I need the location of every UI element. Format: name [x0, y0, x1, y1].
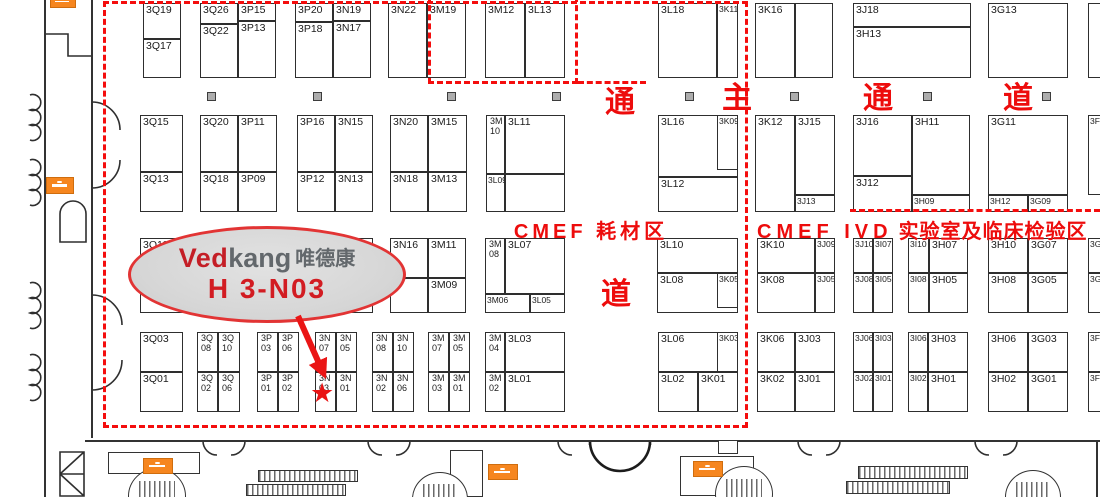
- column-marker: [790, 92, 799, 101]
- booth-3F0: 3F0: [1088, 332, 1100, 372]
- elevator-icon: [693, 461, 723, 477]
- escalator: [858, 466, 968, 479]
- service-room: [718, 440, 738, 454]
- main-aisle-label-3: 道: [1000, 84, 1036, 114]
- escalator: [846, 481, 950, 494]
- main-aisle-label-1: 主: [719, 84, 755, 114]
- booth-3J03: 3J03: [795, 332, 835, 372]
- elevator-icon: [50, 0, 76, 8]
- booth-3H08: 3H08: [988, 273, 1028, 313]
- booth-3H02: 3H02: [988, 372, 1028, 412]
- booth-3J12: 3J12: [853, 176, 912, 212]
- booth-3J08: 3J08: [853, 273, 873, 313]
- region-label-ivd-prefix: CMEF IVD: [757, 221, 893, 243]
- inner-wall-left: [91, 0, 93, 438]
- bottom-wall: [85, 440, 1100, 442]
- dashed-segment: [578, 81, 646, 84]
- booth-star-icon: ★: [310, 380, 334, 407]
- booth-3G05: 3G05: [1028, 273, 1068, 313]
- booth-3G11: 3G11: [988, 115, 1068, 195]
- booth-3J01: 3J01: [795, 372, 835, 412]
- booth-3I01: 3I01: [873, 372, 893, 412]
- booth-3I02: 3I02: [908, 372, 928, 412]
- column-marker: [1042, 92, 1051, 101]
- booth-3G03: 3G03: [1028, 332, 1068, 372]
- elevator-icon: [488, 464, 518, 480]
- logo-text-kang: kang: [228, 243, 291, 273]
- booth-3J02: 3J02: [853, 372, 873, 412]
- aisle-label-vertical-top: 通: [602, 88, 638, 118]
- booth-3J15: 3J15: [795, 115, 835, 195]
- booth-3J05: 3J05: [815, 273, 835, 313]
- booth-3K06: 3K06: [757, 332, 795, 372]
- booth-3H11: 3H11: [912, 115, 970, 195]
- escalator: [258, 470, 358, 482]
- booth-3G01: 3G01: [1028, 372, 1068, 412]
- booth-3G0: 3G0: [1088, 273, 1100, 313]
- logo-text-cn: 唯德康: [295, 248, 355, 270]
- booth-3J16: 3J16: [853, 115, 912, 176]
- highlight-dashed-box: [428, 0, 578, 84]
- main-aisle-label-2: 通: [860, 84, 896, 114]
- booth-3H03: 3H03: [928, 332, 968, 372]
- booth-3F0: 3F0: [1088, 115, 1100, 195]
- booth-3H13: 3H13: [853, 27, 971, 78]
- region-label-ivd-suffix: 实验室及临床检验区: [899, 221, 1088, 243]
- booth-3H06: 3H06: [988, 332, 1028, 372]
- booth-3H01: 3H01: [928, 372, 968, 412]
- booth-cell: [795, 3, 833, 78]
- booth-3G13: 3G13: [988, 3, 1068, 78]
- booth-number-label: H 3-N03: [131, 274, 403, 303]
- elevator-icon: [46, 177, 74, 194]
- booth-3K02: 3K02: [757, 372, 795, 412]
- booth-3I03: 3I03: [873, 332, 893, 372]
- outer-wall-left: [44, 0, 46, 497]
- column-marker: [923, 92, 932, 101]
- booth-3H05: 3H05: [929, 273, 968, 313]
- exhibition-floorplan: 3Q193Q173Q263Q223P153P133P203P183N193N17…: [0, 0, 1100, 497]
- stairwell: [1005, 470, 1061, 497]
- aisle-label-vertical-bottom: 道: [598, 280, 634, 310]
- escalator: [246, 484, 346, 496]
- booth-3F0: 3F0: [1088, 372, 1100, 412]
- right-wall-stub: [1096, 441, 1098, 497]
- vedkang-callout-bubble: Vedkang唯德康 H 3-N03: [128, 226, 406, 323]
- booth-3K08: 3K08: [757, 273, 815, 313]
- ivd-zone-dashed-border: [850, 209, 1100, 212]
- booth-3I08: 3I08: [908, 273, 929, 313]
- elevator-icon: [143, 458, 173, 474]
- booth-3J13: 3J13: [795, 195, 835, 212]
- booth-3G0: 3G0: [1088, 238, 1100, 273]
- booth-3K16: 3K16: [755, 3, 795, 78]
- booth-cell: [1088, 3, 1100, 78]
- logo-text-ved: Ved: [179, 243, 229, 273]
- vedkang-logo: Vedkang唯德康: [131, 242, 403, 274]
- booth-3K12: 3K12: [755, 115, 795, 212]
- region-label-consumables: CMEF 耗材区: [496, 215, 686, 244]
- region-label-ivd: CMEF IVD实验室及临床检验区: [757, 215, 1088, 244]
- booth-3I06: 3I06: [908, 332, 928, 372]
- booth-3J18: 3J18: [853, 3, 971, 27]
- booth-3I05: 3I05: [873, 273, 893, 313]
- booth-3J06: 3J06: [853, 332, 873, 372]
